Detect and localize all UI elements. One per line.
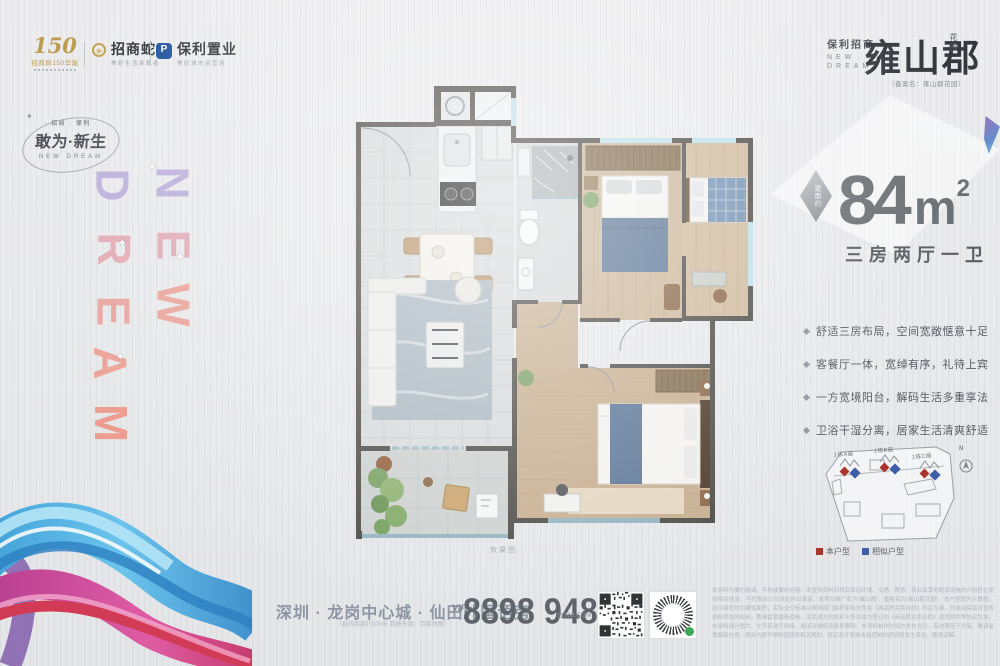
address-note: （直线距离约300米 数据来源：百度地图） [336,619,450,628]
balcony-table [442,484,469,511]
diamond-bullet-icon [803,427,810,434]
vertical-letter-w: W [151,283,197,326]
room-layout-label: 三房两厅一卫 [845,241,989,267]
diamond-bullet-icon [803,328,810,335]
legend-blue-swatch [862,548,869,555]
selling-point-text: 客餐厅一体，宽绰有序，礼待上宾 [816,359,989,372]
legend-label: 本户型 [826,546,850,557]
cmsk-logo-icon [92,43,106,57]
tower-label: 1栋A座 [834,449,854,458]
siteplan-legend: 本户型 相似户型 [816,546,904,557]
selling-point: 舒适三房布局，空间宽敞惬意十足 [804,326,994,339]
master-runner [610,404,642,484]
vertical-letter-a: A [88,346,134,379]
area-exponent: 2 [957,175,970,202]
sparkle-icon: ✦ [26,112,33,121]
compass-n-label: N [959,446,963,452]
sofa [368,292,396,406]
logo-150-title: 招商局150华诞 [26,57,84,67]
emblem-main-text: 敢为·新生 [27,128,115,152]
logo-150-anniversary: 150 招商局150华诞 [26,36,84,71]
sparkle-icon: ✦ [118,238,126,249]
legend-this-unit: 本户型 [816,546,850,557]
poly-tagline: 美好城市运营商 [177,59,237,67]
lounge-chair [455,277,481,303]
vertical-letter-e: E [150,230,196,261]
vertical-letter-r: R [92,232,138,265]
floorplan-caption: 效果图 [490,545,517,555]
selling-point: 客餐厅一体，宽绰有序，礼待上宾 [804,359,994,372]
area-badge-text: 建面约 [811,185,821,208]
sparkle-icon: ✦ [148,162,156,173]
legend-label: 相似户型 [872,546,904,557]
tower-label: 1栋B座 [874,445,894,454]
tower-label: 1栋C座 [912,451,933,460]
legend-similar-unit: 相似户型 [862,546,904,557]
project-name: 雍山郡 [864,28,981,82]
phone-number: 8898 9488 [463,592,616,633]
poly-logo-icon: P [156,43,172,59]
logo-poly: P 保利置业 美好城市运营商 [156,42,237,67]
poly-name: 保利置业 [177,42,237,57]
sparkle-icon: ✦ [176,252,184,263]
qr-code-square [598,592,644,638]
logo-150-number: 150 [26,36,84,56]
selling-point-text: 卫浴干湿分离，居家生活清爽舒适 [816,425,989,438]
area-unit: m [914,182,957,235]
selling-point-text: 舒适三房布局，空间宽敞惬意十足 [816,326,989,339]
logo-divider [150,42,151,66]
master-desk [544,494,580,512]
filing-note: （备案名：雍山郡花园） [888,78,965,88]
living-room [368,277,492,420]
selling-point: 一方宽境阳台，解码生活多重享法 [804,392,994,405]
legend-red-swatch [816,548,823,555]
vertical-letter-n: N [150,166,196,199]
diamond-bullet-icon [803,361,810,368]
new-dream-emblem: ✦ · 招商 · 保利 · 敢为·新生 NEW DREAM [28,118,114,160]
project-name-suffix: 花园 [948,33,959,53]
selling-point: 卫浴干湿分离，居家生活清爽舒适 [804,425,994,438]
phone-suffix: @163.COM [557,612,591,619]
selling-point-text: 一方宽境阳台，解码生活多重享法 [816,392,989,405]
qr-green-dot [685,627,694,636]
logo-150-underline [34,69,76,71]
paint-wave-art [0,418,252,666]
sparkle-icon: ✦ [116,352,124,363]
floorplan [348,86,768,556]
legal-disclaimer: 本资料为要约邀请，不构成要约内容。本宣传资料对项目周边环境、交通、教育、商业及其… [712,587,994,653]
vertical-letter-d: D [90,168,136,201]
poster-root: 150 招商局150华诞 招商蛇口 美好生活承载者 P 保利置业 美好城市运营商… [0,0,1000,666]
bed2-blanket [602,218,668,272]
qr-code-circular [650,592,696,638]
area-number: 84 [838,161,908,239]
vertical-letter-e2: E [90,296,136,327]
area-value: 84m2 [838,160,970,240]
logo-divider [84,42,85,66]
diamond-bullet-icon [803,394,810,401]
